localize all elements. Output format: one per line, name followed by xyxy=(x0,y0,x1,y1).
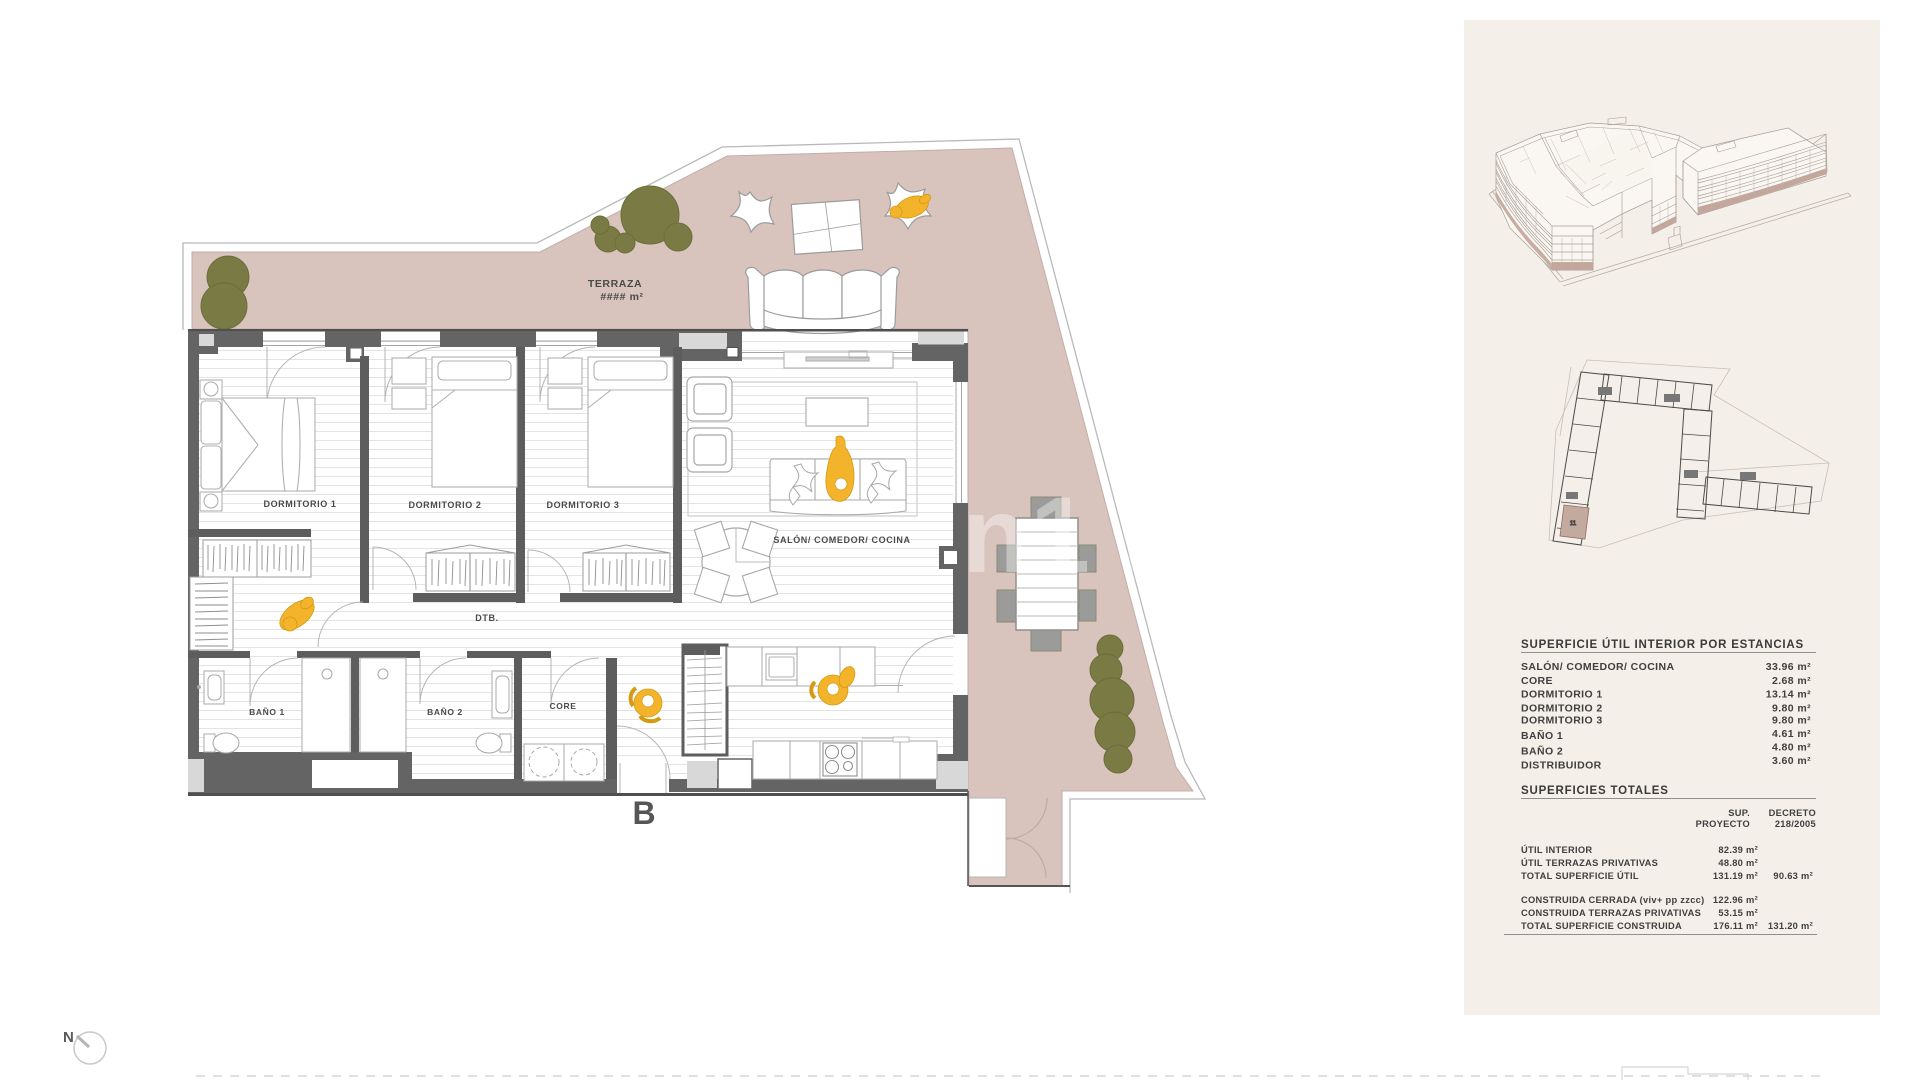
svg-text:DORMITORIO 3: DORMITORIO 3 xyxy=(546,500,619,510)
svg-text:ÚTIL INTERIOR: ÚTIL INTERIOR xyxy=(1521,844,1592,855)
svg-text:218/2005: 218/2005 xyxy=(1775,819,1816,829)
svg-text:131.19 m²: 131.19 m² xyxy=(1713,871,1758,881)
svg-text:DECRETO: DECRETO xyxy=(1769,808,1816,818)
svg-text:48.80 m²: 48.80 m² xyxy=(1718,858,1758,868)
svg-text:BAÑO 2: BAÑO 2 xyxy=(427,707,463,717)
svg-text:#### m²: #### m² xyxy=(600,291,643,303)
svg-text:TOTAL SUPERFICIE ÚTIL: TOTAL SUPERFICIE ÚTIL xyxy=(1521,870,1639,881)
svg-text:176.11 m²: 176.11 m² xyxy=(1713,921,1758,931)
svg-text:.: . xyxy=(1120,474,1150,595)
svg-text:90.63 m²: 90.63 m² xyxy=(1773,871,1813,881)
svg-text:DORMITORIO 1: DORMITORIO 1 xyxy=(263,499,336,509)
svg-text:131.20 m²: 131.20 m² xyxy=(1768,921,1813,931)
svg-text:3.60 m²: 3.60 m² xyxy=(1772,755,1811,767)
svg-text:TERRAZA: TERRAZA xyxy=(588,278,642,290)
svg-text:122.96 m²: 122.96 m² xyxy=(1713,895,1758,905)
svg-text:CONSTRUIDA TERRAZAS PRIVATIVAS: CONSTRUIDA TERRAZAS PRIVATIVAS xyxy=(1521,908,1701,918)
svg-text:BAÑO 2: BAÑO 2 xyxy=(1521,745,1563,758)
svg-text:9.80 m²: 9.80 m² xyxy=(1772,715,1811,727)
svg-text:11: 11 xyxy=(1570,521,1577,527)
svg-text:2.68 m²: 2.68 m² xyxy=(1772,675,1811,687)
svg-text:BAÑO 1: BAÑO 1 xyxy=(1521,729,1563,742)
svg-text:SUPERFICIES TOTALES: SUPERFICIES TOTALES xyxy=(1521,785,1669,797)
svg-text:53.15 m²: 53.15 m² xyxy=(1718,908,1758,918)
svg-text:SUPERFICIE ÚTIL INTERIOR POR E: SUPERFICIE ÚTIL INTERIOR POR ESTANCIAS xyxy=(1521,638,1804,651)
svg-text:CORE: CORE xyxy=(1521,675,1553,687)
svg-text:4.61 m²: 4.61 m² xyxy=(1772,728,1811,740)
svg-text:DORMITORIO 3: DORMITORIO 3 xyxy=(1521,715,1603,727)
svg-text:9.80 m²: 9.80 m² xyxy=(1772,703,1811,715)
svg-text:DTB.: DTB. xyxy=(475,613,498,623)
svg-text:DORMITORIO 1: DORMITORIO 1 xyxy=(1521,689,1603,701)
svg-text:33.96 m²: 33.96 m² xyxy=(1766,661,1811,673)
svg-text:CORE: CORE xyxy=(550,701,577,711)
svg-text:4.80 m²: 4.80 m² xyxy=(1772,742,1811,754)
svg-text:ÚTIL TERRAZAS PRIVATIVAS: ÚTIL TERRAZAS PRIVATIVAS xyxy=(1521,857,1658,868)
svg-text:TOTAL SUPERFICIE CONSTRUIDA: TOTAL SUPERFICIE CONSTRUIDA xyxy=(1521,921,1682,931)
svg-text:N: N xyxy=(63,1029,74,1046)
svg-text:DORMITORIO 2: DORMITORIO 2 xyxy=(408,500,481,510)
svg-text:DISTRIBUIDOR: DISTRIBUIDOR xyxy=(1521,760,1602,772)
svg-text:PROYECTO: PROYECTO xyxy=(1696,819,1750,829)
svg-text:B: B xyxy=(632,795,655,831)
svg-text:82.39 m²: 82.39 m² xyxy=(1718,845,1758,855)
svg-text:SALÓN/ COMEDOR/ COCINA: SALÓN/ COMEDOR/ COCINA xyxy=(1521,660,1674,673)
svg-text:SUP.: SUP. xyxy=(1728,808,1750,818)
svg-text:BAÑO 1: BAÑO 1 xyxy=(249,707,285,717)
svg-text:SALÓN/ COMEDOR/ COCINA: SALÓN/ COMEDOR/ COCINA xyxy=(773,534,910,545)
svg-text:DORMITORIO 2: DORMITORIO 2 xyxy=(1521,703,1603,715)
svg-text:CONSTRUIDA CERRADA (viv+ pp zz: CONSTRUIDA CERRADA (viv+ pp zzcc) xyxy=(1521,895,1705,905)
svg-text:n1: n1 xyxy=(962,474,1092,595)
svg-text:13.14 m²: 13.14 m² xyxy=(1766,689,1811,701)
